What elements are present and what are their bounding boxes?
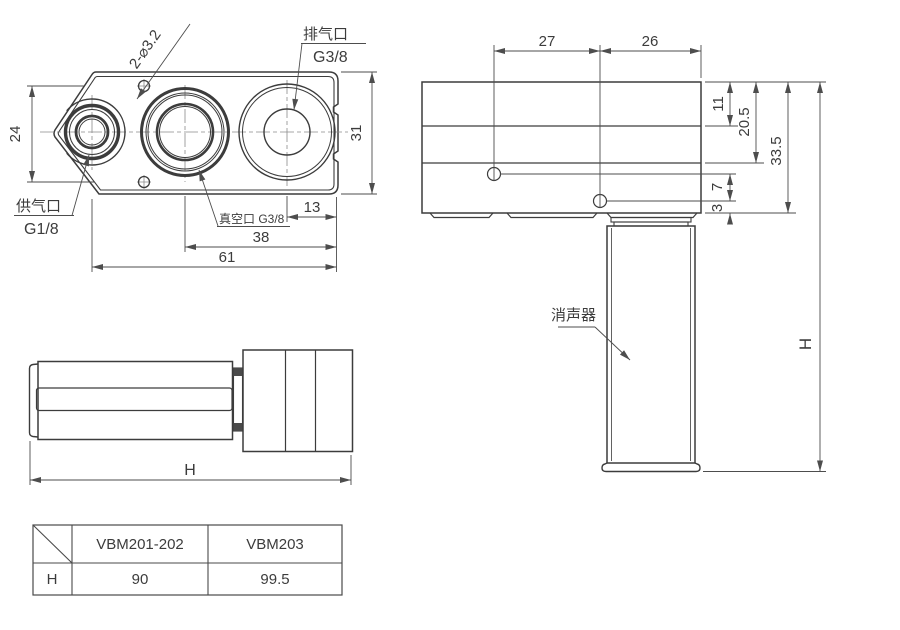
table-row-header: H — [47, 571, 58, 588]
dim-label-7: 7 — [709, 183, 726, 191]
dim-label-31: 31 — [348, 125, 365, 142]
table-header-vbm203: VBM203 — [246, 536, 304, 553]
dim-label-3: 3 — [709, 204, 726, 212]
drawing-canvas: 24 31 13 38 61 2-⌀3.2 排气口 G3/8 — [0, 0, 900, 630]
table-value-90: 90 — [132, 571, 149, 588]
dim-label-33-5: 33.5 — [768, 136, 785, 165]
technical-drawing: 24 31 13 38 61 2-⌀3.2 排气口 G3/8 — [0, 0, 900, 630]
dim-label-61: 61 — [219, 249, 236, 266]
dim-label-38: 38 — [253, 229, 270, 246]
exhaust-port-text: 排气口 — [303, 26, 348, 43]
dim-label-26: 26 — [642, 33, 659, 50]
table-value-99-5: 99.5 — [260, 571, 289, 588]
dim-label-11: 11 — [710, 96, 727, 112]
dim-label-20-5: 20.5 — [736, 107, 753, 136]
exhaust-thread-text: G3/8 — [313, 49, 348, 66]
dim-label-h-right: H — [796, 338, 815, 350]
muffler-text: 消声器 — [551, 306, 596, 324]
dim-label-13: 13 — [304, 199, 321, 216]
supply-port-text: 供气口 — [16, 198, 61, 215]
dim-label-h-bottom: H — [184, 462, 196, 479]
vacuum-port-text: 真空口 G3/8 — [219, 212, 285, 226]
dim-label-24: 24 — [7, 126, 24, 143]
supply-thread-text: G1/8 — [24, 221, 59, 238]
dim-label-27: 27 — [539, 33, 556, 50]
table-header-vbm201-202: VBM201-202 — [96, 536, 184, 553]
